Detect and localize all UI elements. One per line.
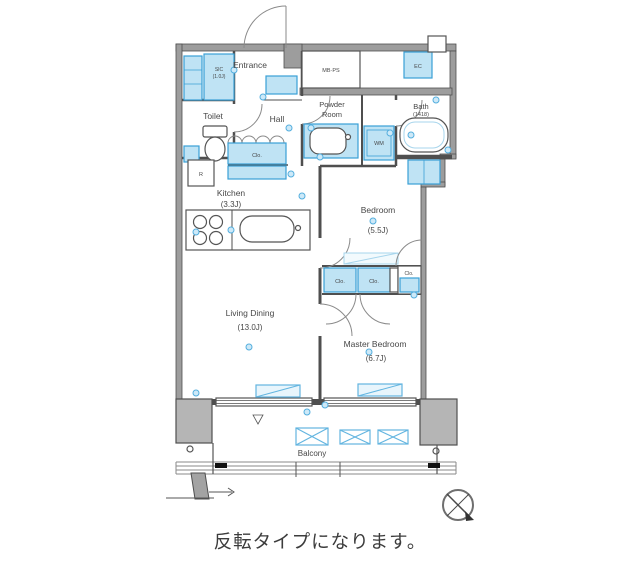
closet-right-label: Clo.	[369, 279, 379, 285]
pillar-left	[176, 399, 212, 443]
wm-label: WM	[374, 141, 384, 147]
closet-left-label: Clo.	[335, 279, 345, 285]
bathtub	[400, 118, 448, 152]
balcony-drain-left	[187, 446, 193, 452]
balcony-window-right	[324, 398, 416, 406]
balcony-label: Balcony	[298, 449, 326, 458]
master-bedroom-door-arc	[320, 304, 352, 336]
pillar-right	[420, 399, 457, 445]
kitchen-cupboard	[228, 166, 286, 179]
drain-pipe-wedge	[191, 473, 209, 499]
railing-mark-right	[428, 463, 440, 468]
entrance-door-arc	[244, 6, 286, 48]
kitchen-sink	[240, 216, 294, 242]
washbasin-faucet	[346, 135, 351, 140]
closet-door-arc-left	[326, 294, 356, 324]
hall-closet-bifold-arcs	[228, 136, 284, 143]
living-dining-label: Living Dining	[226, 308, 275, 318]
hall-closet-label: Clo.	[252, 153, 262, 159]
closet-door-arc-right	[360, 294, 390, 324]
sic-shelf-cabinet	[184, 56, 202, 100]
toilet-label: Toilet	[203, 111, 223, 121]
kitchen-size: (3.3J)	[221, 200, 242, 209]
master-closet-label: Clo.	[405, 271, 414, 277]
refrigerator-label: R	[199, 172, 203, 178]
washbasin-bowl	[310, 128, 346, 154]
hose-bib-triangle	[253, 415, 263, 424]
bath-size: (1418)	[413, 112, 429, 118]
bath-label: Bath	[413, 102, 428, 111]
toilet-door-arc	[234, 104, 262, 132]
toilet-bowl	[205, 137, 225, 161]
master-closet-door-arc	[396, 240, 422, 266]
floor-plan-page: Entrance SIC (1.0J) MB·PS EC Toilet Hall…	[0, 0, 640, 569]
kitchen-label: Kitchen	[217, 188, 246, 198]
entrance-label: Entrance	[233, 60, 267, 70]
bedroom-size: (5.5J)	[368, 226, 389, 235]
sic-label: SIC	[215, 67, 224, 73]
floor-plan-drawing: Entrance SIC (1.0J) MB·PS EC Toilet Hall…	[0, 0, 640, 569]
closet-sliver	[390, 268, 398, 292]
meter-box-label: MB·PS	[322, 68, 340, 74]
hall-label: Hall	[270, 114, 285, 124]
equipment-marks	[256, 384, 408, 445]
balcony-window-left	[216, 398, 312, 406]
toilet-tank	[203, 126, 227, 137]
railing-mark-left	[215, 463, 227, 468]
ec-label: EC	[414, 64, 422, 70]
living-dining-size: (13.0J)	[238, 323, 263, 332]
bedroom-label: Bedroom	[361, 205, 396, 215]
sink-faucet	[296, 226, 301, 231]
entrance-storage	[266, 76, 297, 94]
balcony-drain-right	[433, 448, 439, 454]
bathtub-drain	[408, 132, 414, 138]
duct-notch	[428, 36, 446, 52]
powder-room-label-2: Room	[322, 110, 342, 119]
master-bedroom-size: (6.7J)	[366, 354, 387, 363]
master-bedroom-label: Master Bedroom	[344, 339, 407, 349]
powder-room-label-1: Powder	[319, 100, 345, 109]
north-compass-icon	[443, 490, 474, 521]
sic-size: (1.0J)	[213, 74, 226, 80]
caption-text: 反転タイプになります。	[214, 531, 427, 552]
